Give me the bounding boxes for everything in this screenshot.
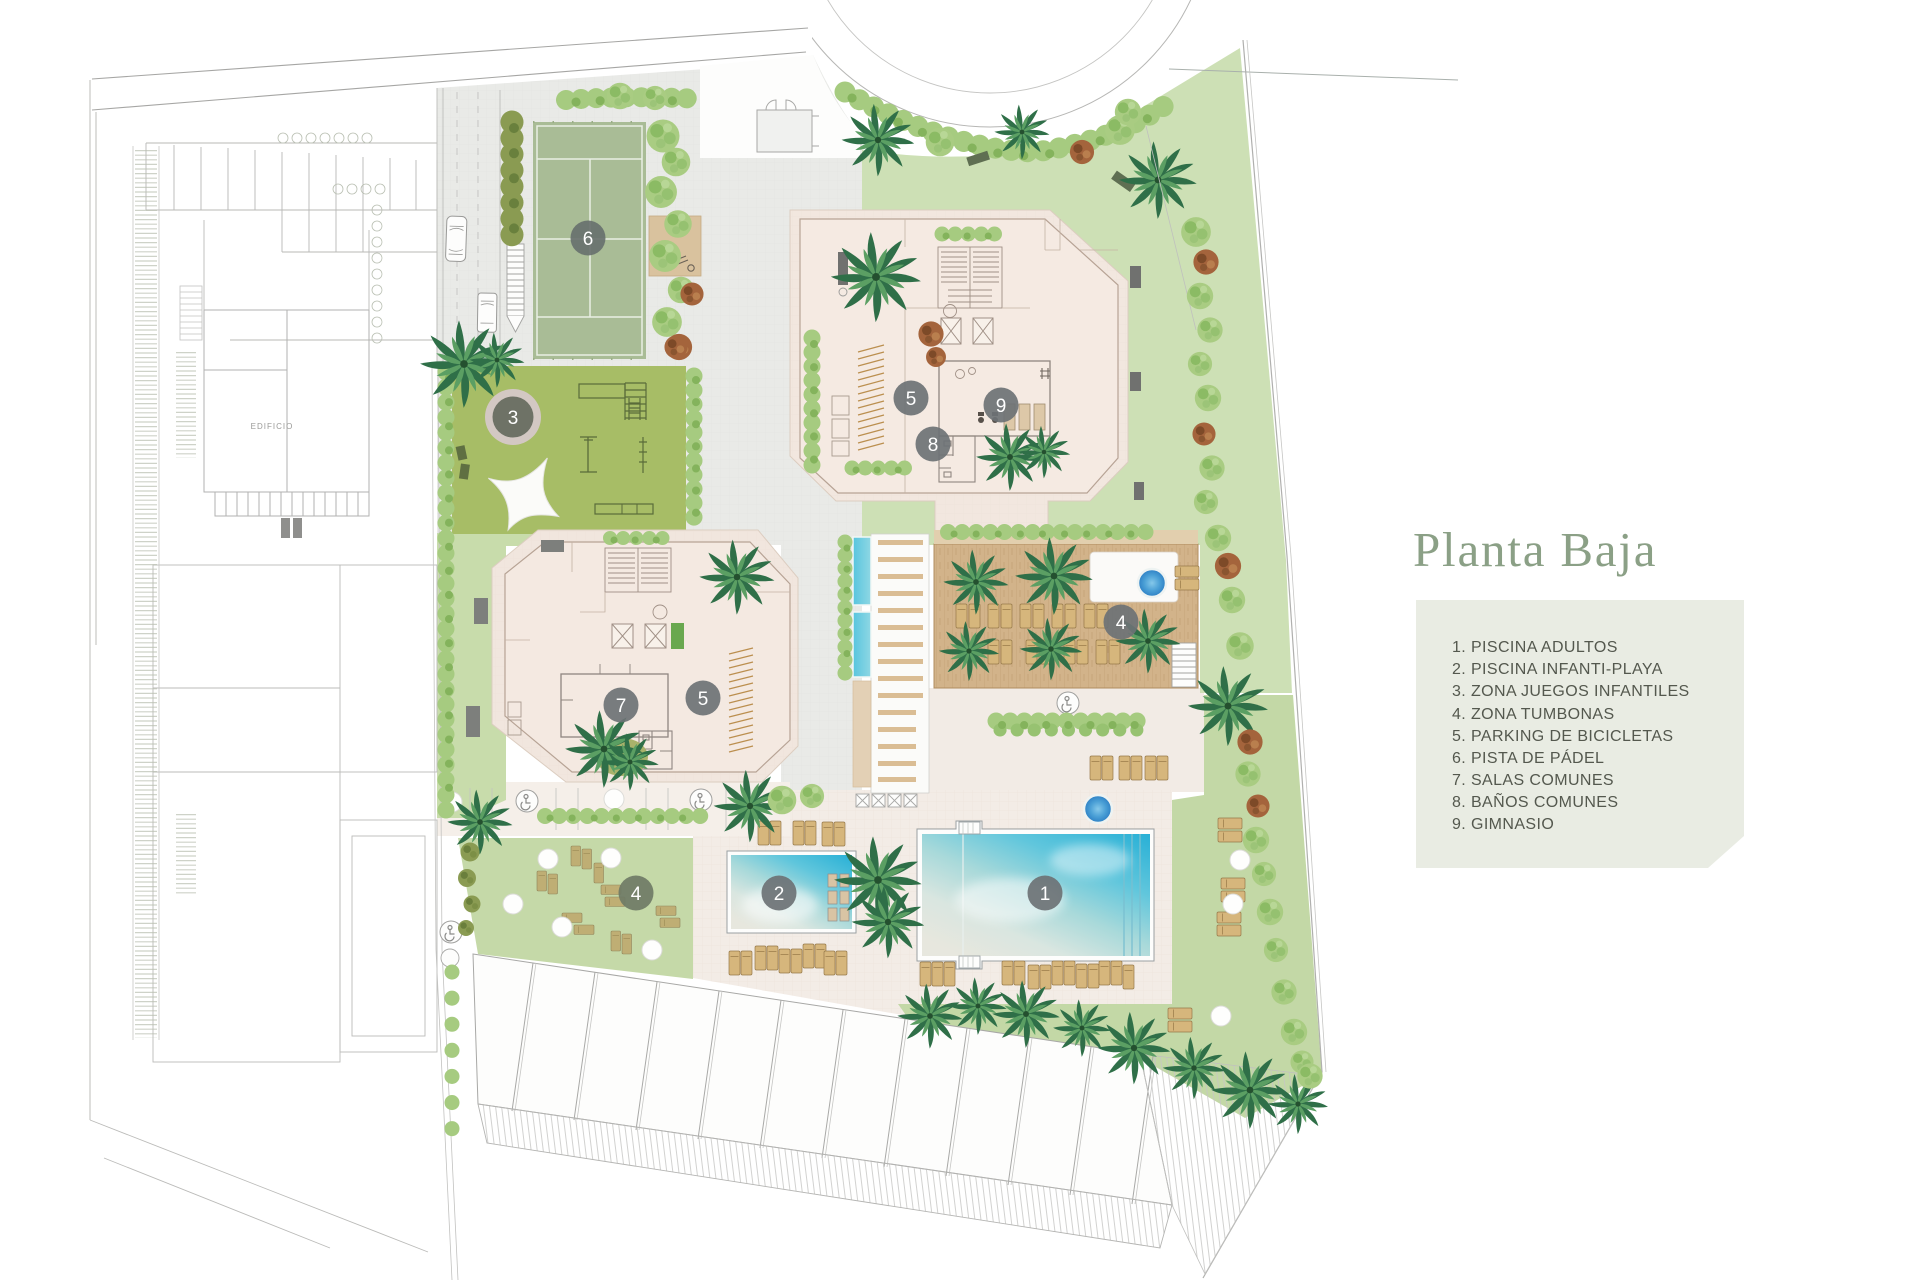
- svg-text:3: 3: [508, 408, 519, 429]
- svg-text:5. PARKING DE BICICLETAS: 5. PARKING DE BICICLETAS: [1452, 728, 1674, 745]
- svg-text:7. SALAS COMUNES: 7. SALAS COMUNES: [1452, 772, 1614, 789]
- svg-text:Planta Baja: Planta Baja: [1413, 522, 1657, 577]
- svg-text:5: 5: [698, 689, 709, 710]
- svg-text:6. PISTA DE PÁDEL: 6. PISTA DE PÁDEL: [1452, 748, 1604, 767]
- svg-text:8: 8: [928, 435, 939, 456]
- svg-text:9: 9: [996, 396, 1007, 417]
- svg-text:2: 2: [774, 884, 785, 905]
- svg-text:EDIFICIO: EDIFICIO: [251, 422, 294, 431]
- svg-text:1: 1: [1040, 884, 1051, 905]
- svg-text:6: 6: [583, 229, 594, 250]
- svg-text:4: 4: [1116, 613, 1127, 634]
- svg-text:1. PISCINA ADULTOS: 1. PISCINA ADULTOS: [1452, 639, 1618, 656]
- svg-text:4: 4: [631, 884, 642, 905]
- svg-text:4. ZONA TUMBONAS: 4. ZONA TUMBONAS: [1452, 706, 1615, 723]
- svg-text:9. GIMNASIO: 9. GIMNASIO: [1452, 816, 1554, 833]
- svg-text:3. ZONA JUEGOS INFANTILES: 3. ZONA JUEGOS INFANTILES: [1452, 683, 1690, 700]
- svg-text:2. PISCINA INFANTI-PLAYA: 2. PISCINA INFANTI-PLAYA: [1452, 661, 1663, 678]
- svg-text:7: 7: [616, 696, 627, 717]
- svg-text:5: 5: [906, 389, 917, 410]
- svg-text:8. BAÑOS COMUNES: 8. BAÑOS COMUNES: [1452, 791, 1618, 811]
